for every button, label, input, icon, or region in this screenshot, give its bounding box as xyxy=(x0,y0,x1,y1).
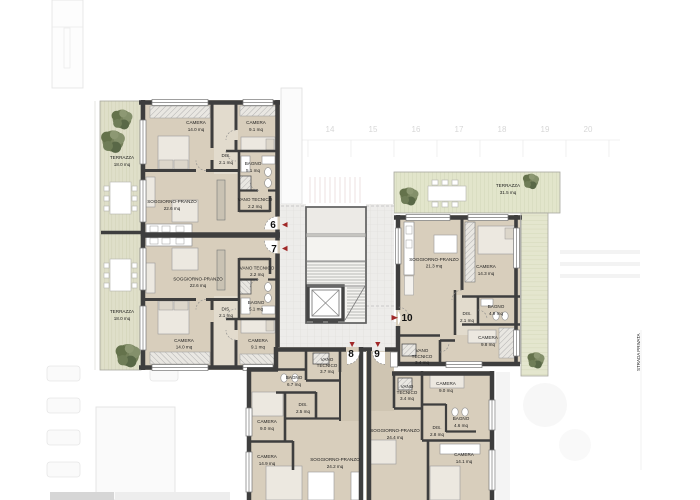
svg-text:14.9 mq: 14.9 mq xyxy=(259,461,276,466)
svg-text:DIS.: DIS. xyxy=(299,402,308,407)
svg-text:19: 19 xyxy=(541,125,550,134)
svg-text:3.4 mq: 3.4 mq xyxy=(415,360,429,365)
svg-text:18: 18 xyxy=(498,125,507,134)
svg-text:VANO TECNICO: VANO TECNICO xyxy=(238,197,273,202)
svg-text:BAGNO: BAGNO xyxy=(453,416,470,421)
svg-text:22.6 mq: 22.6 mq xyxy=(164,206,181,211)
svg-text:5.1 mq: 5.1 mq xyxy=(246,168,260,173)
svg-text:15: 15 xyxy=(369,125,378,134)
svg-text:9.1 mq: 9.1 mq xyxy=(249,127,263,132)
svg-text:9.1 mq: 9.1 mq xyxy=(251,345,265,350)
svg-text:4.6 mq: 4.6 mq xyxy=(454,423,468,428)
svg-text:14: 14 xyxy=(326,125,335,134)
svg-text:24.2 mq: 24.2 mq xyxy=(327,464,344,469)
svg-text:TERRAZZA: TERRAZZA xyxy=(110,155,135,160)
svg-text:BAGNO: BAGNO xyxy=(248,300,265,305)
svg-text:STRADA PRIVATA: STRADA PRIVATA xyxy=(636,333,641,371)
svg-text:CAMERA: CAMERA xyxy=(246,120,267,125)
svg-text:VANO: VANO xyxy=(401,384,414,389)
svg-text:10: 10 xyxy=(401,313,413,324)
svg-text:CAMERA: CAMERA xyxy=(174,338,195,343)
svg-text:6: 6 xyxy=(270,220,276,231)
svg-text:TERRAZZA: TERRAZZA xyxy=(496,183,521,188)
svg-text:SOGGIORNO-PRANZO: SOGGIORNO-PRANZO xyxy=(310,457,360,462)
svg-text:14.0 mq: 14.0 mq xyxy=(176,345,193,350)
svg-text:18.0 mq: 18.0 mq xyxy=(114,162,131,167)
svg-text:VANO: VANO xyxy=(416,348,429,353)
svg-text:9.0 mq: 9.0 mq xyxy=(260,426,274,431)
svg-text:CAMERA: CAMERA xyxy=(436,381,457,386)
svg-text:TECNICO: TECNICO xyxy=(412,354,433,359)
svg-text:CAMERA: CAMERA xyxy=(476,264,497,269)
svg-text:SOGGIORNO-PRANZO: SOGGIORNO-PRANZO xyxy=(370,428,420,433)
svg-text:9.0 mq: 9.0 mq xyxy=(439,388,453,393)
svg-text:2.1 mq: 2.1 mq xyxy=(460,318,474,323)
svg-text:VANO TECNICO: VANO TECNICO xyxy=(240,266,275,271)
svg-text:8: 8 xyxy=(348,349,354,360)
svg-text:DIS.: DIS. xyxy=(433,425,442,430)
svg-text:4.9 mq: 4.9 mq xyxy=(489,311,503,316)
svg-text:2.1 mq: 2.1 mq xyxy=(219,160,233,165)
svg-text:DIS.: DIS. xyxy=(222,307,231,312)
svg-text:TECNICO: TECNICO xyxy=(317,363,338,368)
svg-text:TECNICO: TECNICO xyxy=(397,390,418,395)
svg-text:2.1 mq: 2.1 mq xyxy=(219,313,233,318)
svg-text:17: 17 xyxy=(455,125,464,134)
svg-text:20: 20 xyxy=(584,125,593,134)
svg-text:DIS.: DIS. xyxy=(463,311,472,316)
svg-text:3.4 mq: 3.4 mq xyxy=(400,396,414,401)
svg-text:18.0 mq: 18.0 mq xyxy=(114,316,131,321)
svg-text:31.5 mq: 31.5 mq xyxy=(500,190,517,195)
svg-text:6.7 mq: 6.7 mq xyxy=(287,382,301,387)
svg-text:CAMERA: CAMERA xyxy=(186,120,207,125)
svg-text:CAMERA: CAMERA xyxy=(257,419,278,424)
svg-text:5.1 mq: 5.1 mq xyxy=(249,307,263,312)
svg-text:SOGGIORNO-PRANZO: SOGGIORNO-PRANZO xyxy=(173,277,223,282)
svg-text:9: 9 xyxy=(374,349,380,360)
svg-text:22.6 mq: 22.6 mq xyxy=(190,283,207,288)
svg-text:BAGNO: BAGNO xyxy=(488,304,505,309)
svg-text:BAGNO: BAGNO xyxy=(245,161,262,166)
svg-text:SOGGIORNO-PRANZO: SOGGIORNO-PRANZO xyxy=(409,257,459,262)
svg-text:TERRAZZA: TERRAZZA xyxy=(110,309,135,314)
svg-text:CAMERA: CAMERA xyxy=(478,335,499,340)
svg-text:DIS.: DIS. xyxy=(222,153,231,158)
svg-text:14.3 mq: 14.3 mq xyxy=(478,271,495,276)
svg-text:CAMERA: CAMERA xyxy=(257,454,278,459)
svg-text:CAMERA: CAMERA xyxy=(454,452,475,457)
svg-text:21.3 mq: 21.3 mq xyxy=(426,264,443,269)
svg-text:7: 7 xyxy=(271,244,277,255)
svg-text:3.7 mq: 3.7 mq xyxy=(320,369,334,374)
svg-text:2.8 mq: 2.8 mq xyxy=(430,432,444,437)
svg-text:14.1 mq: 14.1 mq xyxy=(456,459,473,464)
svg-text:9.8 mq: 9.8 mq xyxy=(481,342,495,347)
svg-text:CAMERA: CAMERA xyxy=(248,338,269,343)
svg-text:2.5 mq: 2.5 mq xyxy=(296,409,310,414)
svg-text:2.2 mq: 2.2 mq xyxy=(248,204,262,209)
svg-text:14.0 mq: 14.0 mq xyxy=(188,127,205,132)
svg-text:VANO: VANO xyxy=(321,357,334,362)
svg-text:16: 16 xyxy=(412,125,421,134)
svg-text:BAGNO: BAGNO xyxy=(286,375,303,380)
svg-text:24.4 mq: 24.4 mq xyxy=(387,435,404,440)
svg-text:SOGGIORNO-PRANZO: SOGGIORNO-PRANZO xyxy=(147,199,197,204)
svg-text:2.2 mq: 2.2 mq xyxy=(250,272,264,277)
